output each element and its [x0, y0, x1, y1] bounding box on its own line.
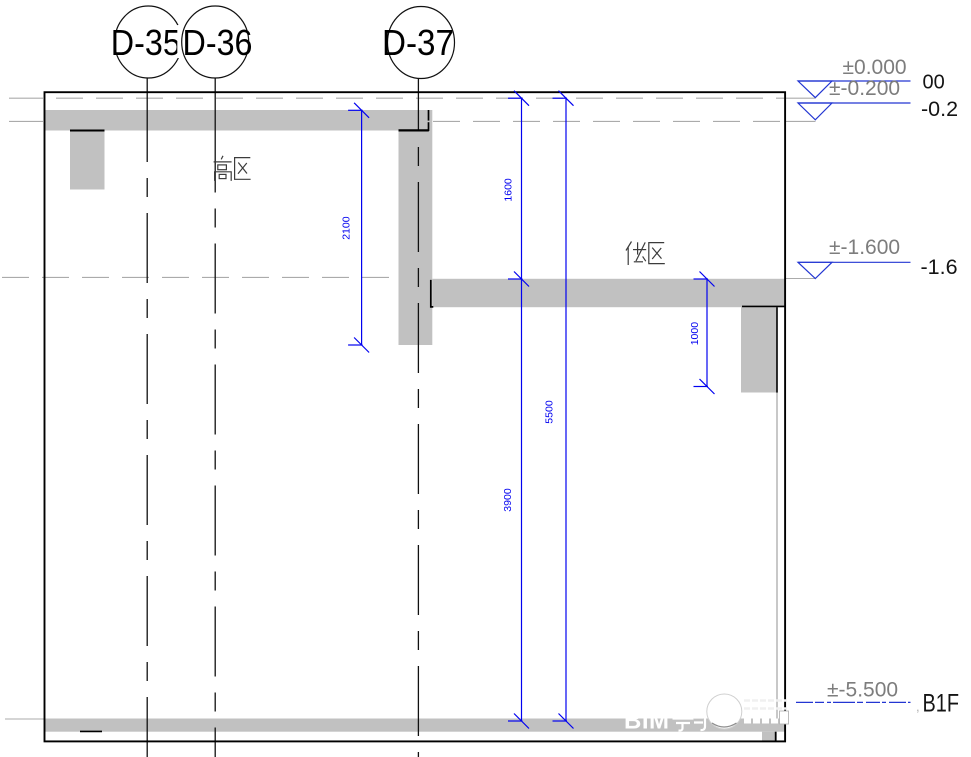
svg-text:-1.6: -1.6	[921, 255, 958, 279]
svg-text:±-1.600: ±-1.600	[829, 236, 900, 259]
svg-text:±-0.200: ±-0.200	[829, 77, 900, 100]
svg-text:D-35: D-35	[111, 22, 181, 63]
svg-text:D-36: D-36	[183, 22, 253, 63]
svg-text:B1F: B1F	[923, 689, 960, 717]
svg-text:±0.000: ±0.000	[843, 56, 907, 79]
svg-text:BIM: BIM	[624, 708, 670, 735]
svg-text:2100: 2100	[341, 216, 353, 240]
svg-text:±-5.500: ±-5.500	[827, 679, 898, 702]
svg-text:,: ,	[916, 699, 920, 714]
svg-text:-0.2: -0.2	[921, 97, 958, 121]
svg-text:5500: 5500	[544, 400, 556, 424]
svg-text:00: 00	[923, 72, 945, 94]
svg-text:3900: 3900	[502, 488, 514, 512]
svg-text:D-37: D-37	[382, 22, 454, 63]
svg-text:1000: 1000	[689, 322, 701, 346]
svg-text:1600: 1600	[503, 178, 515, 202]
